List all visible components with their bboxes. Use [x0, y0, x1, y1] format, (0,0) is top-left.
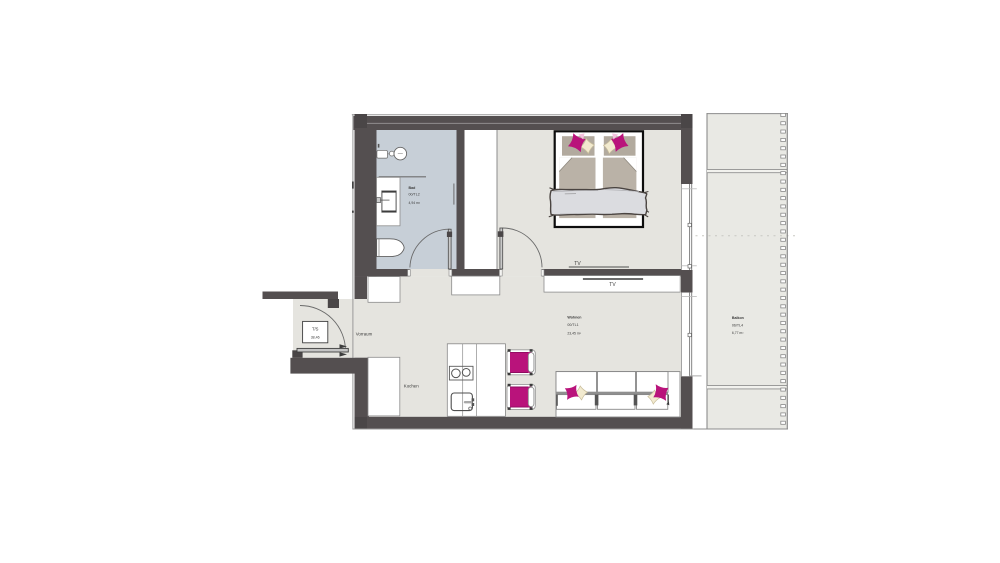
svg-text:4,94 m²: 4,94 m²	[409, 201, 421, 205]
svg-text:Vorraum: Vorraum	[356, 331, 373, 336]
svg-text:00/TL2: 00/TL2	[409, 192, 420, 196]
svg-text:Wohnen: Wohnen	[567, 316, 581, 320]
svg-text:6,77 m²: 6,77 m²	[732, 331, 744, 335]
svg-text:00/TL1: 00/TL1	[567, 323, 578, 327]
svg-text:TV: TV	[574, 261, 581, 267]
svg-text:38,46: 38,46	[311, 335, 320, 339]
svg-text:Kochen: Kochen	[404, 384, 419, 389]
svg-text:Balkon: Balkon	[732, 316, 744, 320]
svg-text:06/TL4: 06/TL4	[732, 323, 743, 327]
svg-text:TV: TV	[609, 282, 616, 288]
svg-text:23,45 m²: 23,45 m²	[567, 331, 581, 335]
svg-text:Bad: Bad	[409, 186, 416, 190]
svg-text:T/S: T/S	[312, 327, 319, 332]
